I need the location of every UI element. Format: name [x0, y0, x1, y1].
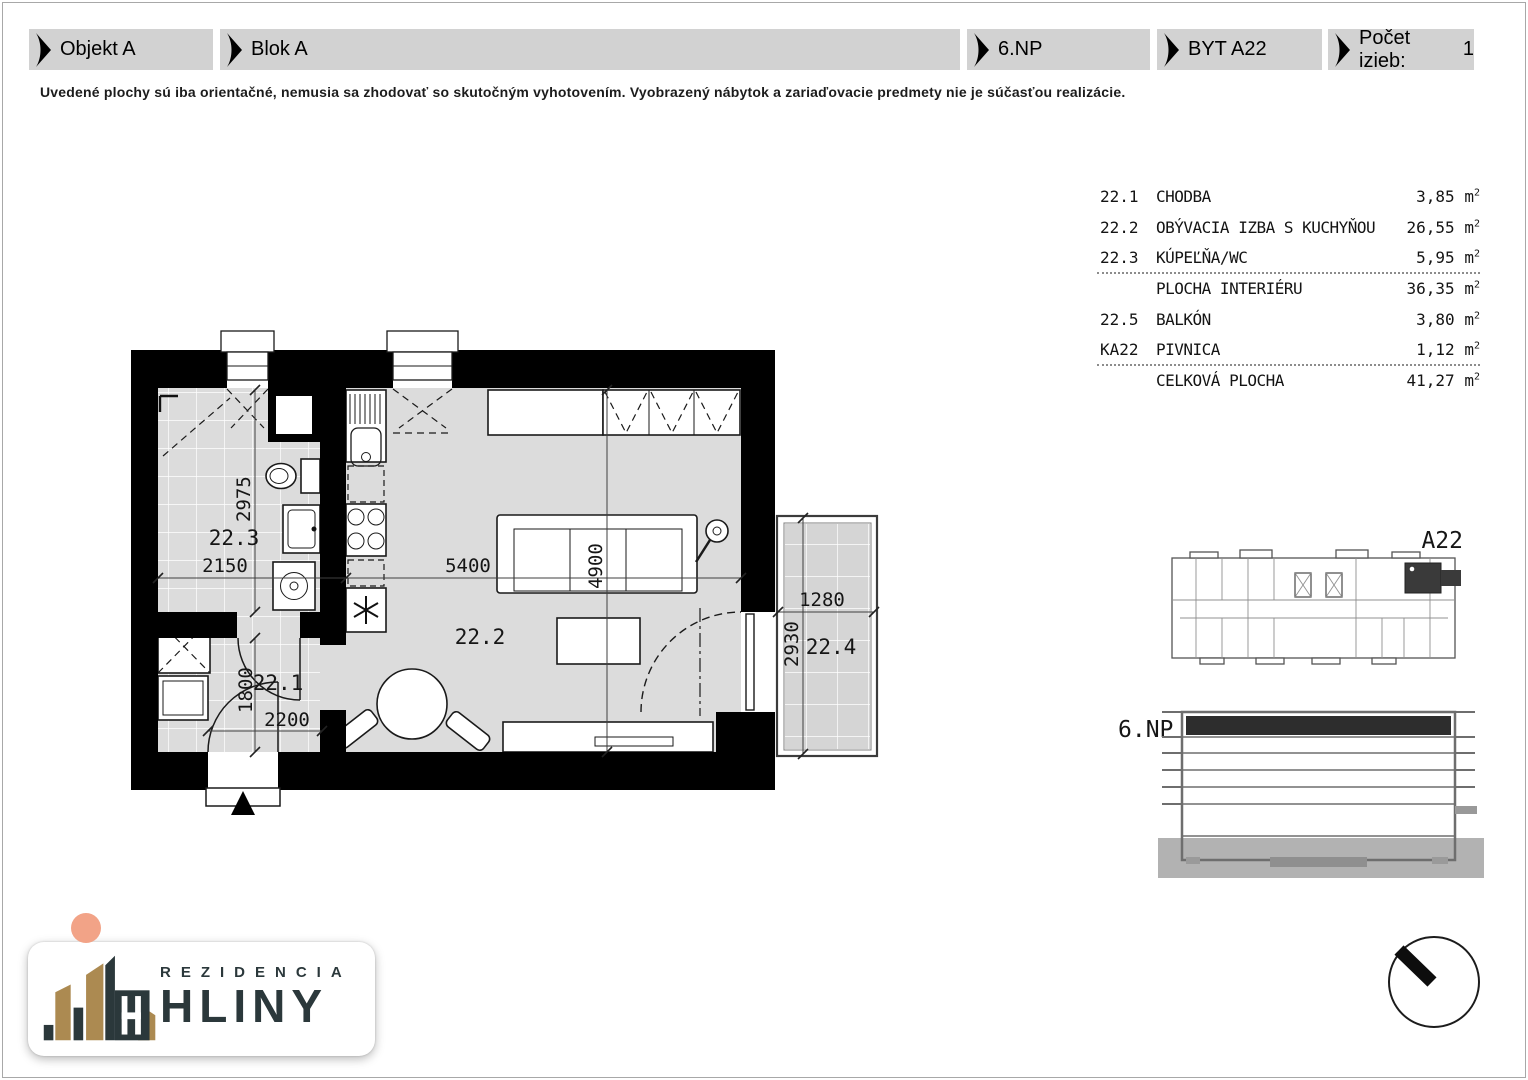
- room-count-label: Počet izieb:: [1359, 27, 1444, 73]
- table-row: 22.3 KÚPEĽŇA/WC 5,95 m2: [1100, 242, 1480, 273]
- floor-lines: [1182, 737, 1455, 836]
- section-marker-icon: [974, 33, 989, 67]
- header-floor: 6.NP: [967, 29, 1150, 70]
- logo-sun-icon: [71, 913, 101, 943]
- washing-machine: [273, 562, 315, 610]
- row-value: 3,85 m2: [1416, 187, 1480, 206]
- brand-logo: REZIDENCIA HLINY: [28, 942, 375, 1056]
- row-value: 41,27 m2: [1407, 371, 1480, 390]
- section-marker-icon: [1164, 33, 1179, 67]
- table-row: KA22 PIVNICA 1,12 m2: [1100, 334, 1480, 365]
- table-separator: [1097, 364, 1480, 366]
- dim-living-height: 4900: [585, 543, 607, 589]
- room-label-balcony: 22.4: [806, 635, 857, 659]
- row-name: CELKOVÁ PLOCHA: [1156, 371, 1407, 390]
- floorplan-sheet: { "header": { "objekt": "Objekt A", "blo…: [0, 0, 1528, 1080]
- header-objekt-label: Objekt A: [60, 38, 136, 61]
- row-value: 5,95 m2: [1416, 248, 1480, 267]
- room-label-bathroom: 22.3: [209, 526, 260, 550]
- row-code: KA22: [1100, 340, 1156, 359]
- logo-buildings-icon: [38, 950, 163, 1046]
- row-code: 22.1: [1100, 187, 1156, 206]
- floor-plan: 22.3 22.1 22.2 22.4 2150 5400 2200 1280 …: [131, 331, 879, 815]
- disclaimer-text: Uvedené plochy sú iba orientačné, nemusi…: [40, 84, 1200, 100]
- header-room-count: Počet izieb: 1: [1328, 29, 1474, 70]
- dim-balcony-height: 2930: [781, 621, 803, 667]
- dim-balcony-width: 1280: [799, 589, 845, 611]
- section-marker-icon: [227, 33, 242, 67]
- dim-hall-width: 2200: [264, 709, 310, 731]
- row-value: 3,80 m2: [1416, 310, 1480, 329]
- dim-living-width: 5400: [445, 555, 491, 577]
- table-row: 22.1 CHODBA 3,85 m2: [1100, 181, 1480, 212]
- table-row: 22.2 OBÝVACIA IZBA S KUCHYŇOU 26,55 m2: [1100, 212, 1480, 243]
- brand-name-bottom: HLINY: [160, 983, 360, 1029]
- dining-table: [377, 669, 447, 739]
- header-unit-label: BYT A22: [1188, 38, 1267, 61]
- drainer-hatch: [350, 394, 380, 424]
- header-unit: BYT A22: [1157, 29, 1322, 70]
- floor-lamp: [706, 520, 728, 542]
- architectural-drawing: 22.3 22.1 22.2 22.4 2150 5400 2200 1280 …: [0, 0, 1528, 1080]
- header-blok-label: Blok A: [251, 38, 308, 61]
- header-floor-label: 6.NP: [998, 38, 1042, 61]
- row-name: KÚPEĽŇA/WC: [1156, 248, 1416, 267]
- elevation-label: 6.NP: [1118, 717, 1173, 743]
- row-name: OBÝVACIA IZBA S KUCHYŇOU: [1156, 218, 1407, 237]
- section-marker-icon: [1335, 33, 1350, 67]
- logo-text: REZIDENCIA HLINY: [160, 964, 360, 1029]
- room-label-living: 22.2: [455, 625, 506, 649]
- shoe-cabinet: [158, 676, 208, 720]
- row-name: PLOCHA INTERIÉRU: [1156, 279, 1407, 298]
- dim-hall-height: 1800: [235, 667, 257, 713]
- table-row: 22.5 BALKÓN 3,80 m2: [1100, 304, 1480, 335]
- area-table: 22.1 CHODBA 3,85 m2 22.2 OBÝVACIA IZBA S…: [1100, 181, 1480, 396]
- north-indicator: [1389, 937, 1479, 1027]
- row-name: BALKÓN: [1156, 310, 1416, 329]
- toilet-tank: [301, 459, 320, 493]
- shaft-niche: [276, 396, 312, 434]
- row-name: CHODBA: [1156, 187, 1416, 206]
- room-count-value: 1: [1463, 38, 1474, 61]
- highlighted-floor: [1186, 716, 1451, 735]
- header-objekt: Objekt A: [29, 29, 213, 70]
- floor-elevation: 6.NP: [1118, 712, 1484, 878]
- key-plan-label: A22: [1421, 528, 1463, 554]
- row-value: 26,55 m2: [1407, 218, 1480, 237]
- row-name: PIVNICA: [1156, 340, 1416, 359]
- row-value: 36,35 m2: [1407, 279, 1480, 298]
- section-marker-icon: [36, 33, 51, 67]
- brand-name-top: REZIDENCIA: [160, 964, 360, 981]
- dim-bath-width: 2150: [202, 555, 248, 577]
- row-value: 1,12 m2: [1416, 340, 1480, 359]
- header-blok: Blok A: [220, 29, 960, 70]
- room-label-hall: 22.1: [253, 671, 304, 695]
- dim-bath-height: 2975: [233, 476, 255, 522]
- row-code: 22.5: [1100, 310, 1156, 329]
- coffee-table: [557, 618, 640, 664]
- cabinet: [488, 390, 603, 435]
- kitchen-fixtures: [346, 390, 386, 632]
- row-code: 22.2: [1100, 218, 1156, 237]
- table-row-subtotal: PLOCHA INTERIÉRU 36,35 m2: [1100, 273, 1480, 304]
- row-code: 22.3: [1100, 248, 1156, 267]
- key-plan: A22: [1172, 528, 1463, 664]
- table-row-total: CELKOVÁ PLOCHA 41,27 m2: [1100, 365, 1480, 396]
- table-separator: [1097, 272, 1480, 274]
